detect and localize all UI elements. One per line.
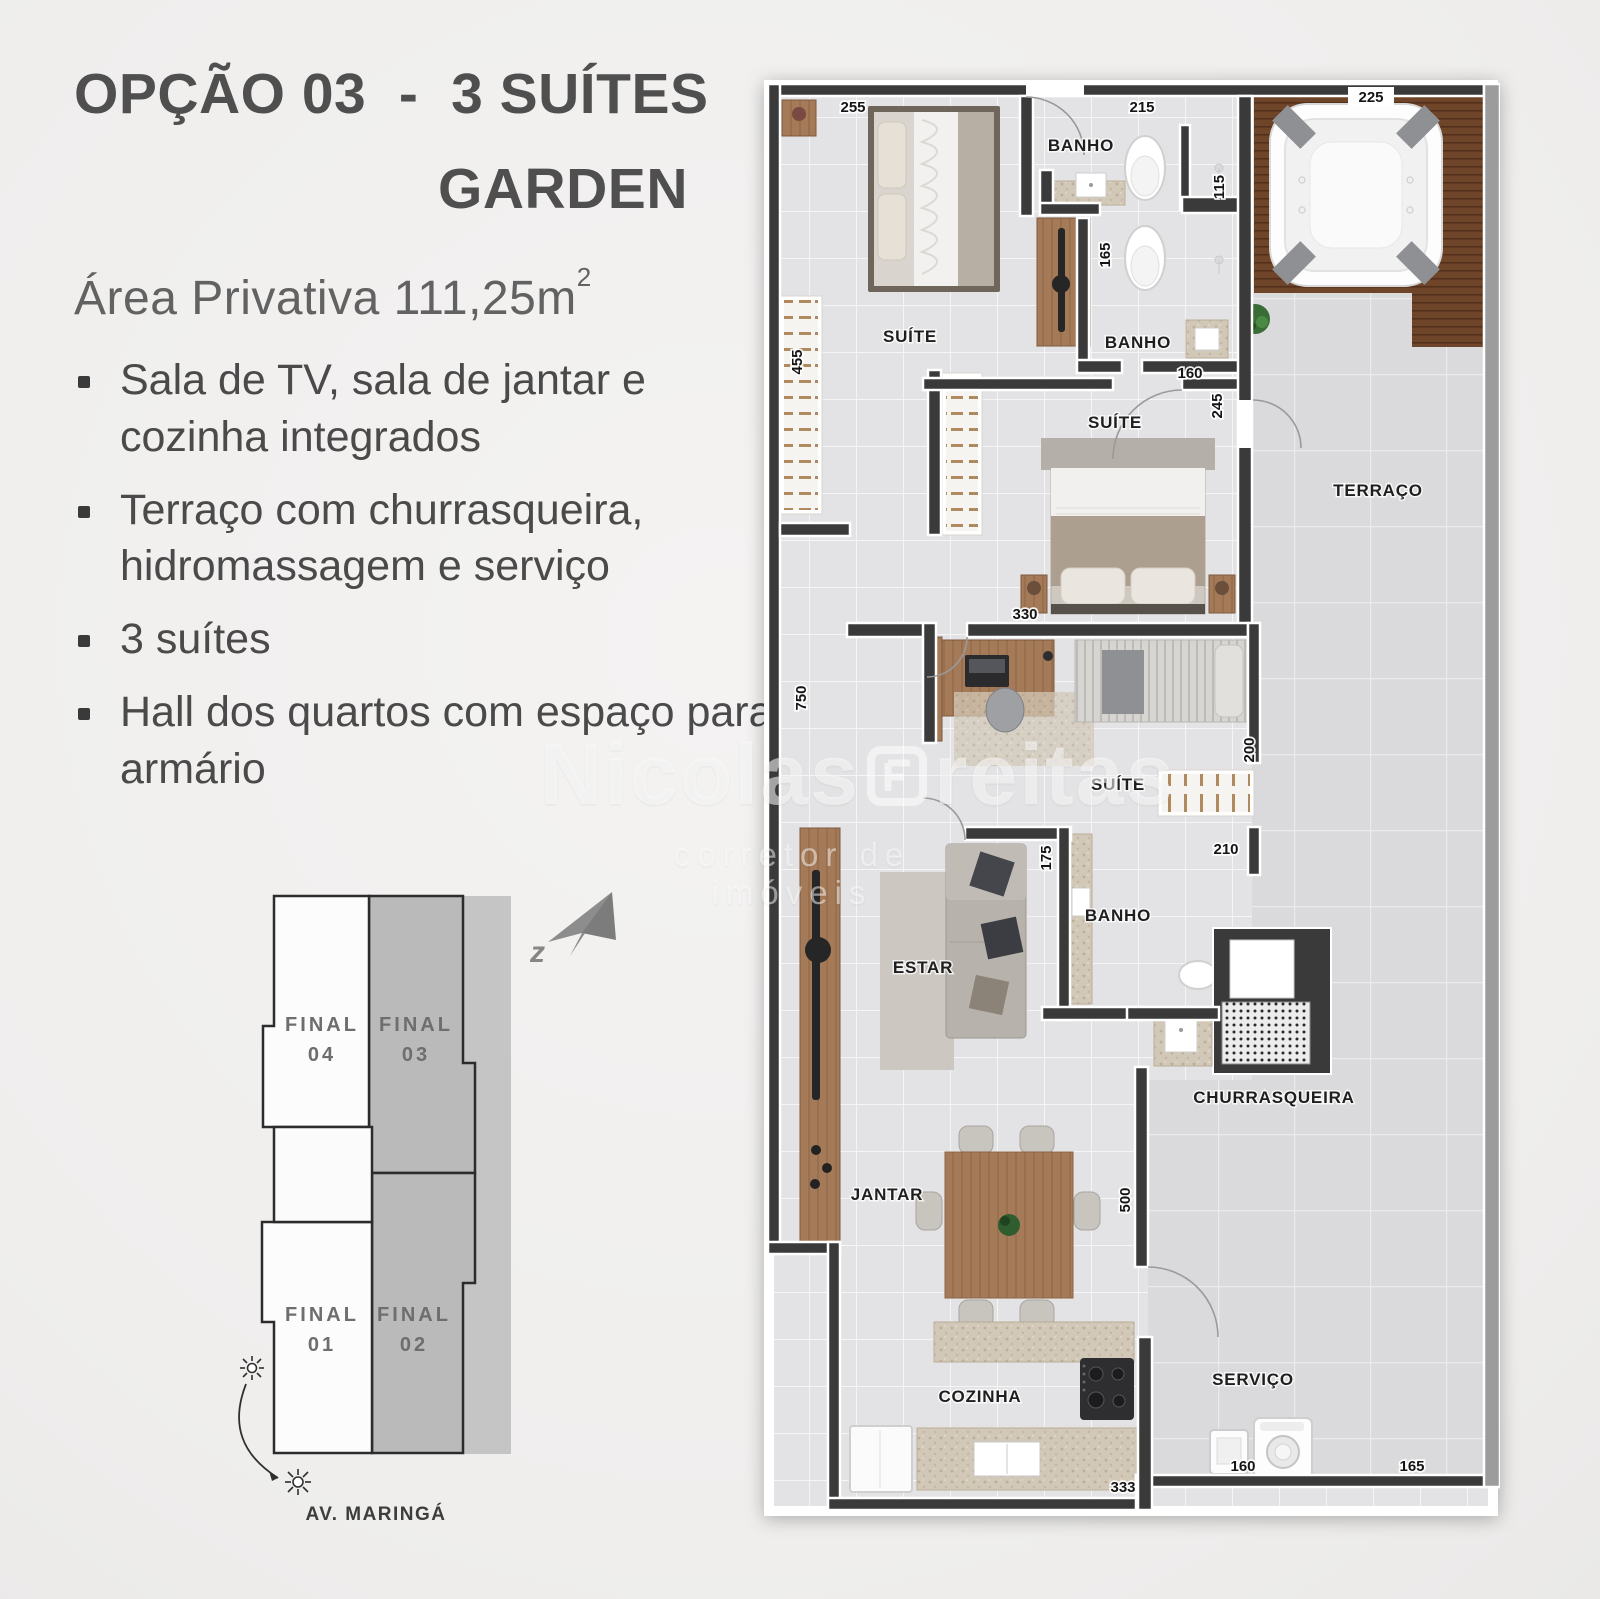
bullet-icon: [78, 376, 90, 388]
dim-215: 215: [1129, 99, 1154, 116]
dim-115: 115: [1211, 175, 1228, 199]
bullet-icon: [78, 635, 90, 647]
dim-750: 750: [793, 685, 810, 710]
rug-suite3: [954, 692, 1094, 766]
room-label-cozinha: COZINHA: [938, 1387, 1021, 1406]
dim-160: 160: [1177, 365, 1202, 382]
unit-label: FINAL: [379, 1014, 453, 1036]
unit-label: 04: [308, 1044, 336, 1066]
sun-icon: [285, 1469, 311, 1495]
dim-255: 255: [840, 99, 865, 116]
unit-label: 02: [400, 1334, 428, 1356]
dim-165b: 165: [1399, 1458, 1424, 1475]
dim-200: 200: [1241, 737, 1258, 762]
room-label-terraco: TERRAÇO: [1333, 481, 1423, 500]
dim-333: 333: [1110, 1479, 1135, 1496]
compass-letter: z: [529, 936, 545, 969]
room-label-servico: SERVIÇO: [1212, 1370, 1294, 1389]
unit-label: FINAL: [285, 1014, 359, 1036]
dim-165: 165: [1097, 242, 1114, 267]
sofa-icon: [946, 844, 1026, 1038]
room-label-banho3: BANHO: [1085, 906, 1151, 925]
unit-location-map: FINAL 04 FINAL 03 FINAL 01 FINAL 02 z AV…: [230, 880, 630, 1545]
washer-icon: [1254, 1418, 1312, 1478]
title-line2: GARDEN: [74, 161, 694, 218]
hot-tub-icon: [1270, 104, 1442, 286]
street-label: AV. MARINGÁ: [305, 1503, 446, 1525]
stove-icon: [1080, 1358, 1134, 1420]
room-label-churrasqueira: CHURRASQUEIRA: [1193, 1088, 1355, 1107]
dim-225: 225: [1358, 89, 1383, 106]
bed-suite2: [1021, 438, 1235, 614]
room-label-suite1: SUÍTE: [883, 327, 937, 346]
feature-item: Sala de TV, sala de jantar e cozinha int…: [74, 352, 774, 466]
bed-suite3: [1075, 640, 1253, 722]
unit-label: FINAL: [285, 1304, 359, 1326]
toilet-icon: [1125, 226, 1165, 290]
room-label-suite2: SUÍTE: [1088, 413, 1142, 432]
unit-label: FINAL: [377, 1304, 451, 1326]
feature-item: Hall dos quartos com espaço para armário: [74, 684, 774, 798]
room-label-banho2: BANHO: [1105, 333, 1171, 352]
sun-path-arrowhead: [269, 1471, 278, 1481]
closet-hall: [942, 373, 982, 535]
sink-icon: [1186, 320, 1228, 358]
title-line1: OPÇÃO 03 - 3 SUÍTES: [74, 62, 709, 126]
area-superscript: 2: [577, 262, 592, 292]
dim-455: 455: [789, 349, 806, 374]
compass-icon: z: [529, 892, 616, 969]
private-area-text: Área Privativa 111,25m2: [74, 262, 754, 326]
room-label-suite3: SUÍTE: [1091, 775, 1145, 794]
floorplan: SUÍTE BANHO BANHO SUÍTE SUÍTE BANHO TERR…: [762, 70, 1500, 1540]
dim-175: 175: [1038, 845, 1055, 870]
dim-330: 330: [1012, 606, 1037, 623]
feature-item: Terraço com churrasqueira, hidromassagem…: [74, 482, 774, 596]
fridge-icon: [850, 1426, 912, 1492]
dim-245: 245: [1209, 393, 1226, 418]
dim-210: 210: [1213, 841, 1238, 858]
toilet-icon: [1125, 136, 1165, 200]
unit-final-04: [263, 896, 369, 1127]
bullet-icon: [78, 506, 90, 518]
feature-list: Sala de TV, sala de jantar e cozinha int…: [74, 352, 774, 813]
tv-sideboard-icon: [800, 828, 840, 1252]
dim-500: 500: [1117, 1187, 1134, 1212]
feature-item: 3 suítes: [74, 611, 774, 668]
room-label-estar: ESTAR: [893, 958, 953, 977]
sun-path-arrow: [239, 1384, 278, 1478]
dim-160b: 160: [1230, 1458, 1255, 1475]
closet-suite3: [1158, 770, 1254, 816]
bullet-icon: [78, 708, 90, 720]
room-label-jantar: JANTAR: [851, 1185, 924, 1204]
closet-suite1: [780, 296, 822, 514]
unit-label: 01: [308, 1334, 336, 1356]
sun-icon: [240, 1356, 264, 1380]
map-core: [274, 1127, 372, 1222]
page-title: OPÇÃO 03 - 3 SUÍTESGARDEN: [74, 66, 694, 218]
room-label-banho1: BANHO: [1048, 136, 1114, 155]
chair-icon: [986, 688, 1024, 732]
unit-label: 03: [402, 1044, 430, 1066]
